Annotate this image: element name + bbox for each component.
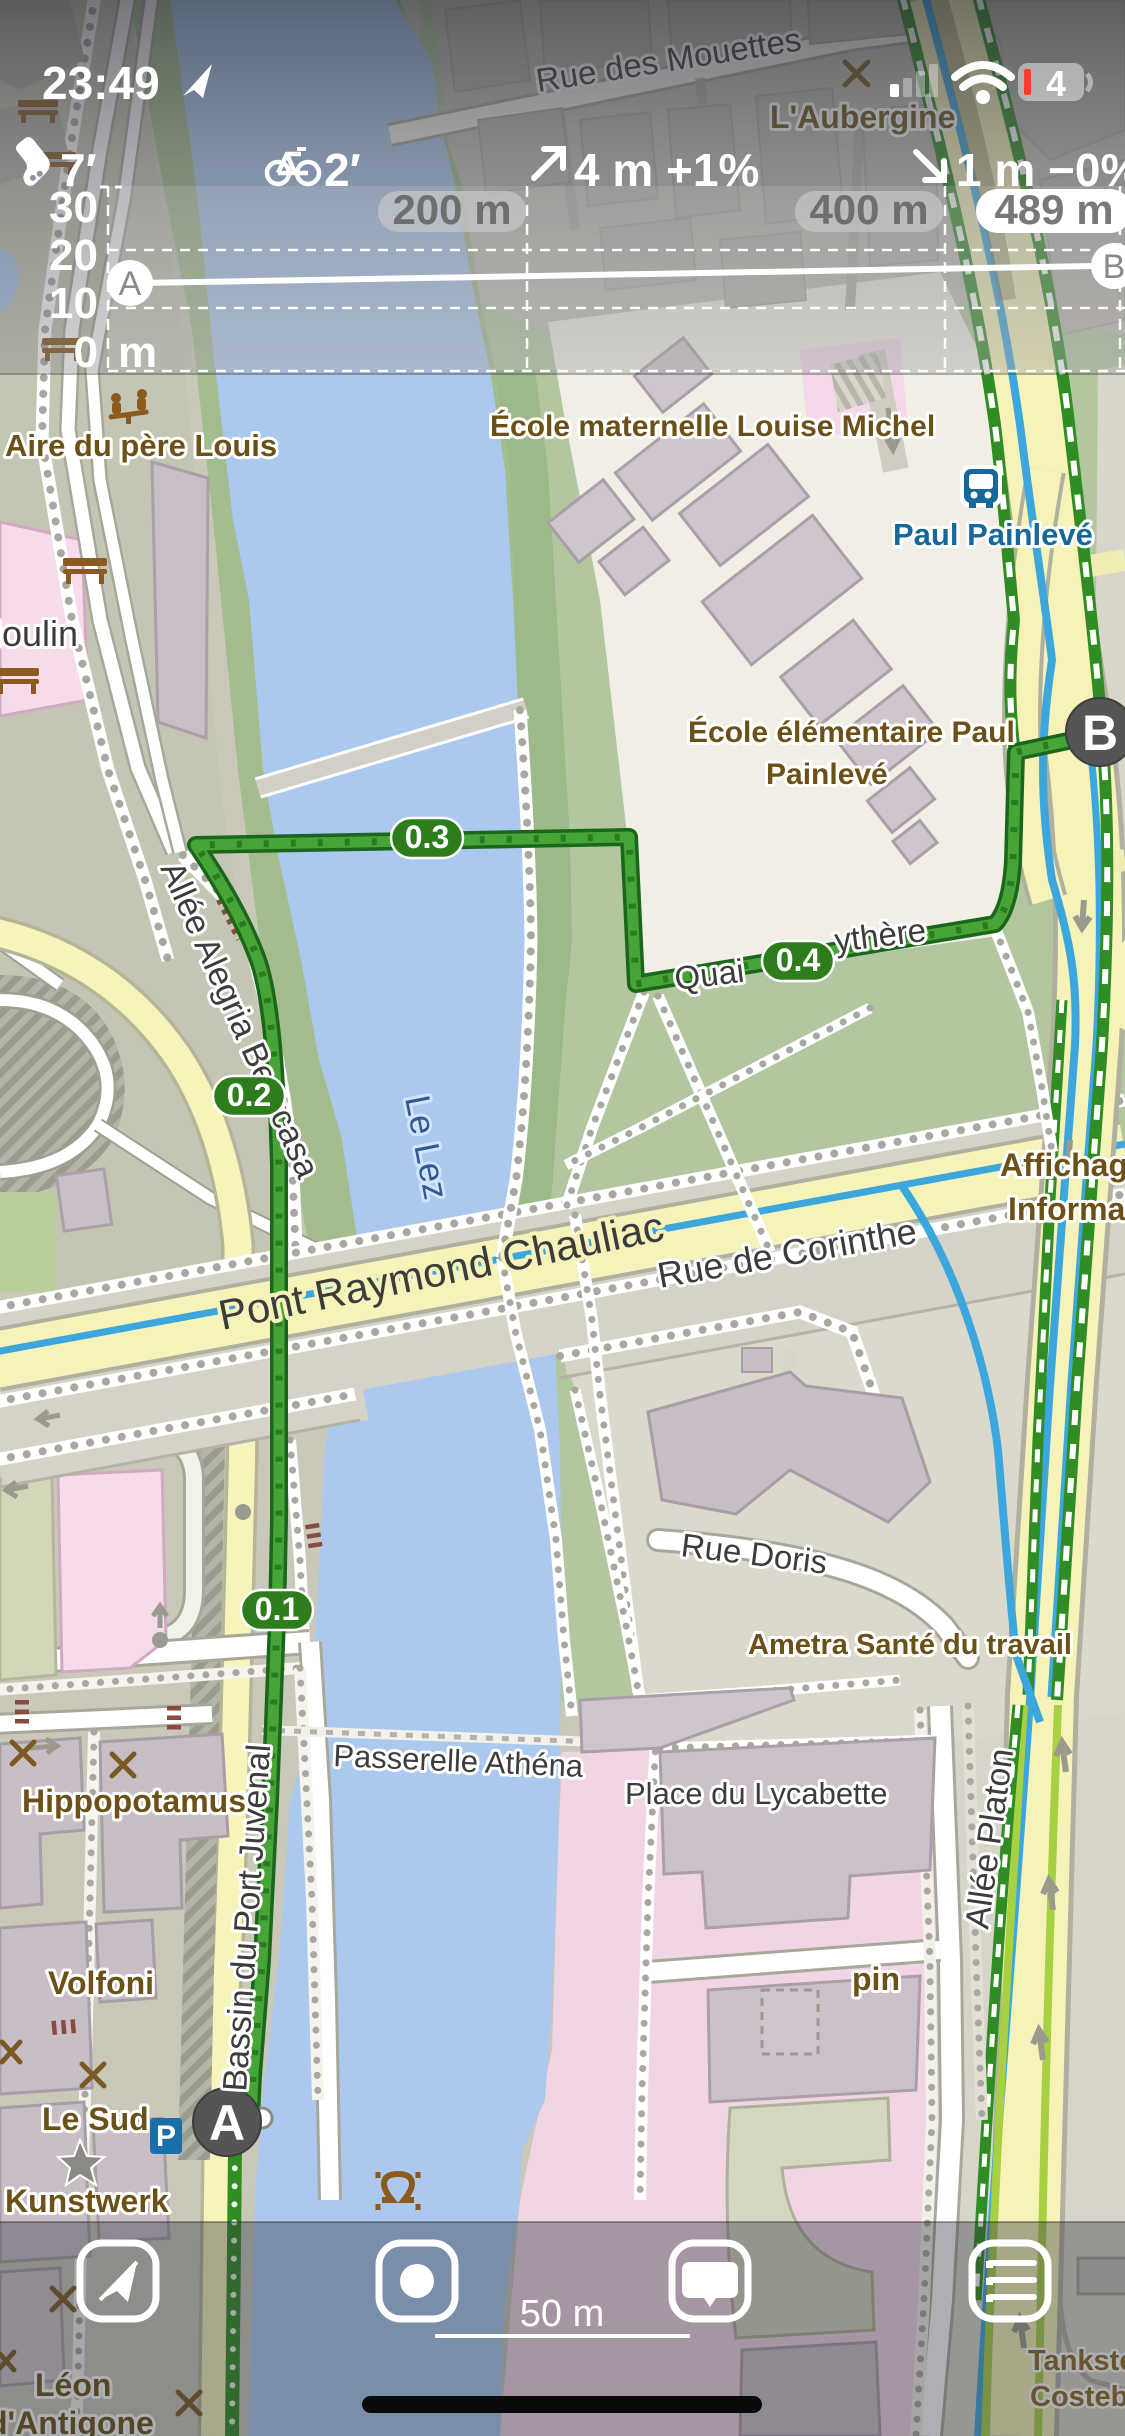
svg-text:200 m: 200 m	[392, 186, 511, 233]
svg-text:50 m: 50 m	[520, 2293, 604, 2335]
svg-text:pin: pin	[852, 1961, 900, 1997]
svg-text:0: 0	[74, 328, 98, 377]
svg-text:Place du Lycabette: Place du Lycabette	[625, 1776, 888, 1811]
svg-text:23:49: 23:49	[42, 57, 160, 109]
svg-text:Painlevé: Painlevé	[766, 758, 888, 791]
svg-text:30: 30	[49, 183, 98, 232]
svg-text:A: A	[119, 265, 142, 303]
svg-text:B: B	[1082, 705, 1118, 761]
svg-text:Volfoni: Volfoni	[48, 1965, 154, 2001]
svg-text:A: A	[209, 2095, 245, 2151]
svg-text:Moulin: Moulin	[0, 613, 78, 654]
svg-text:10: 10	[49, 279, 98, 328]
svg-text:Le Sud: Le Sud	[42, 2101, 149, 2137]
svg-text:0.2: 0.2	[227, 1077, 271, 1113]
svg-text:Kunstwerk: Kunstwerk	[5, 2183, 169, 2219]
svg-text:400 m: 400 m	[809, 186, 928, 233]
svg-text:489 m: 489 m	[994, 186, 1113, 233]
svg-text:Informati: Informati	[1008, 1191, 1125, 1227]
svg-text:20: 20	[49, 231, 98, 280]
svg-text:Hippopotamus: Hippopotamus	[22, 1783, 246, 1819]
svg-text:Paul Painlevé: Paul Painlevé	[893, 517, 1093, 552]
svg-text:Affichag: Affichag	[1000, 1147, 1125, 1183]
svg-text:Ametra Santé du travail: Ametra Santé du travail	[748, 1629, 1072, 1661]
svg-text:B: B	[1103, 248, 1125, 286]
svg-text:École élémentaire Paul: École élémentaire Paul	[688, 715, 1015, 749]
svg-text:m: m	[118, 328, 157, 377]
svg-text:4: 4	[1046, 63, 1066, 104]
svg-text:0.1: 0.1	[255, 1591, 299, 1627]
svg-text:Aire du père Louis: Aire du père Louis	[5, 428, 277, 463]
svg-text:0.4: 0.4	[776, 942, 821, 978]
svg-text:P: P	[156, 2120, 176, 2153]
svg-text:École maternelle Louise Michel: École maternelle Louise Michel	[490, 409, 935, 443]
svg-text:0.3: 0.3	[405, 819, 449, 855]
